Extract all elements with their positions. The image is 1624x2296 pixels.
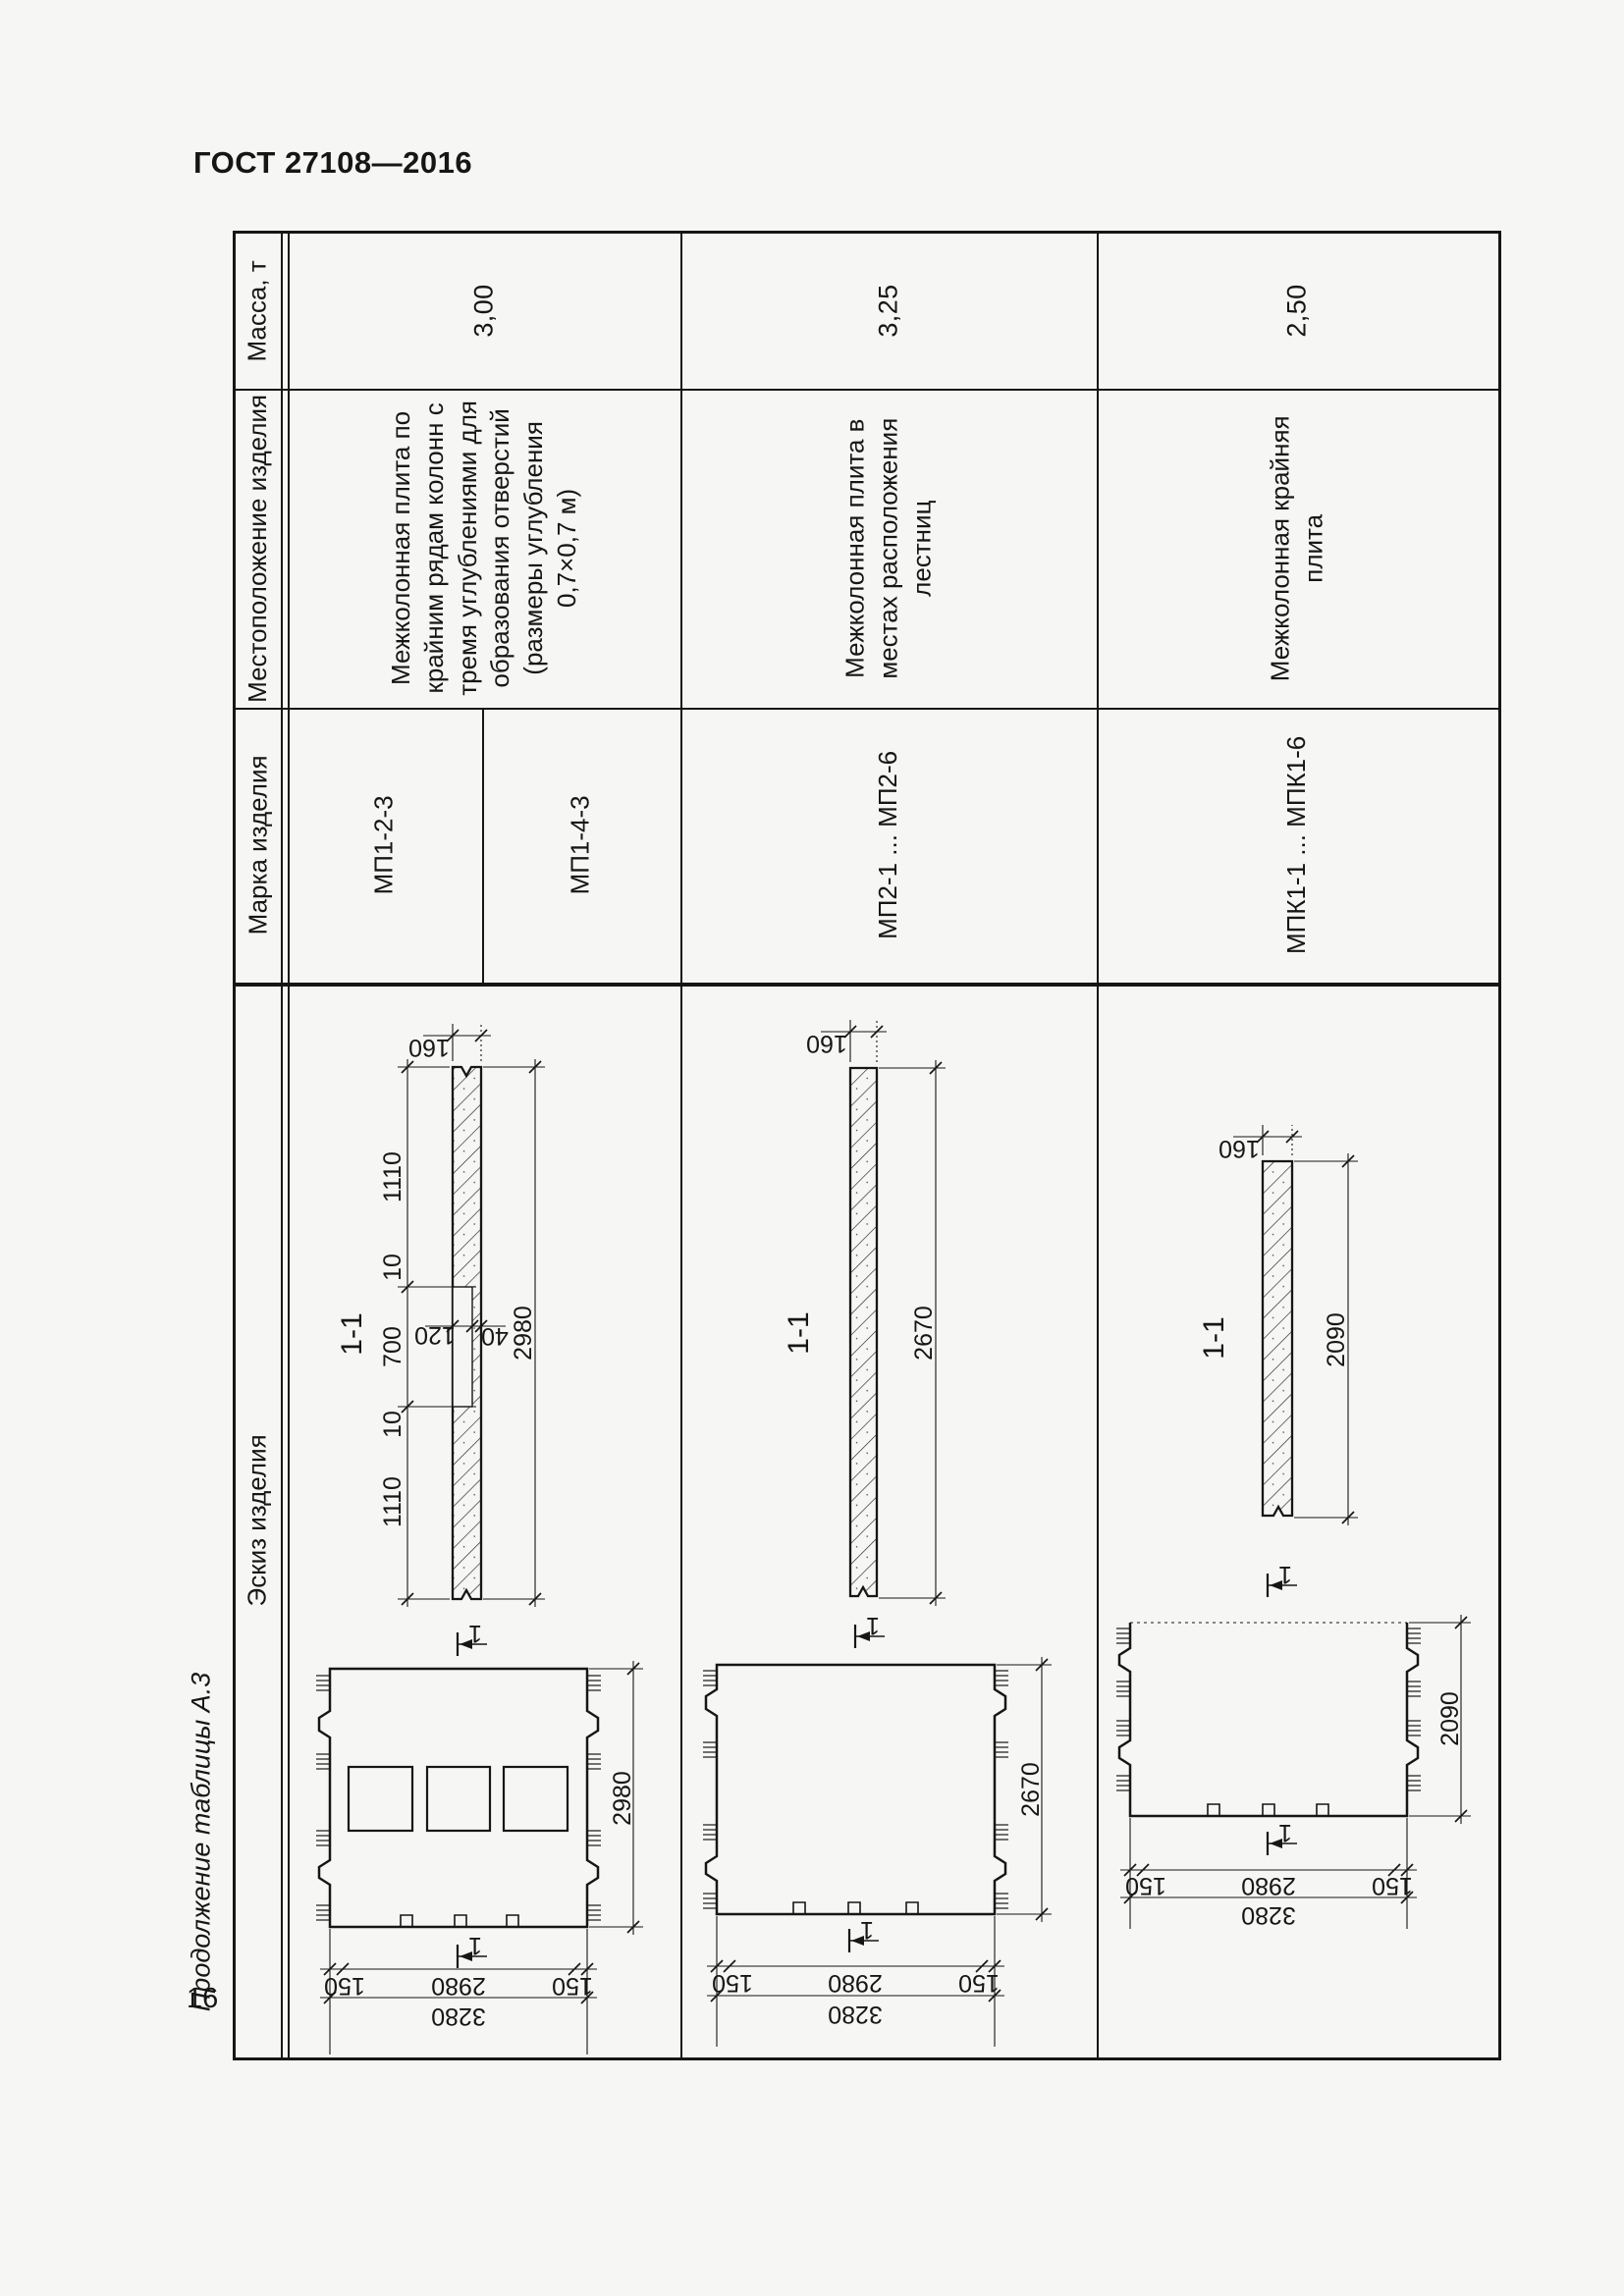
mark-product1-b: МП1-4-3 [482, 708, 680, 983]
plan-opening [504, 1767, 568, 1831]
plan-dim-mid: 2980 [431, 1972, 486, 2000]
grid-line-header-separator [281, 234, 283, 2057]
edge-key [793, 1902, 805, 1914]
table-continuation-caption: Продолжение таблицы А.3 [180, 1696, 223, 1987]
plan-dim-height: 2090 [1436, 1691, 1464, 1746]
mark-product3: МПК1-1 ... МПК1-6 [1097, 708, 1498, 983]
dim-thickness: 160 [408, 1034, 450, 1061]
dim-length: 2670 [910, 1306, 938, 1361]
dim-seg-d: 10 [379, 1411, 406, 1438]
section-label: 1-1 [1198, 1316, 1230, 1359]
edge-key [1263, 1804, 1274, 1816]
plan-dim-edge-r: 150 [552, 1972, 593, 2000]
plan-dim-edge-l: 150 [712, 1969, 753, 1997]
mark-product1-a: МП1-2-3 [288, 708, 482, 983]
location-product3: Межколонная крайняя плита [1097, 389, 1498, 708]
cut-mark: 1 [458, 1932, 487, 1968]
dim-thickness: 160 [1218, 1135, 1260, 1162]
plan-dim-height: 2980 [609, 1771, 636, 1826]
svg-text:1: 1 [866, 1612, 880, 1639]
cut-mark: 1 [458, 1620, 487, 1656]
section-view-product1: 1110 10 700 10 1110 120 40 [336, 1024, 545, 1607]
edge-key [455, 1915, 466, 1927]
dim-seg-e: 1110 [379, 1476, 406, 1527]
plan-opening [349, 1767, 412, 1831]
sketch-product3: 160 2090 1-1 1 [1097, 985, 1498, 2056]
plan-dim-total: 3280 [1241, 1901, 1296, 1929]
row-header-sketch: Эскиз изделия [236, 983, 281, 2057]
document-code: ГОСТ 27108—2016 [193, 145, 472, 181]
row-header-mark: Марка изделия [236, 708, 281, 983]
dim-recess-rest: 40 [481, 1322, 509, 1350]
edge-key [906, 1902, 918, 1914]
dim-length: 2980 [510, 1306, 537, 1361]
page-number: 16 [187, 1983, 218, 2015]
dim-length: 2090 [1323, 1312, 1350, 1367]
plan-dim-height: 2670 [1017, 1762, 1045, 1817]
plan-dim-mid: 2980 [1241, 1872, 1296, 1899]
edge-key [1208, 1804, 1219, 1816]
svg-text:1: 1 [1278, 1819, 1292, 1846]
section-label: 1-1 [336, 1312, 368, 1355]
row-header-location: Местоположение изделия [236, 389, 281, 708]
location-product2: Межколонная плита в местах расположения … [680, 389, 1097, 708]
mass-value-product3: 2,50 [1097, 234, 1498, 389]
cut-mark: 1 [849, 1916, 879, 1952]
svg-text:1: 1 [1278, 1561, 1292, 1588]
sketch-product2: 160 2670 1-1 1 [680, 985, 1097, 2056]
plan-dim-edge-r: 150 [1372, 1872, 1413, 1899]
plan-view-product2: 2670 150 2980 150 3280 [703, 1657, 1052, 2047]
dim-recess-depth: 120 [414, 1321, 456, 1349]
plan-opening [427, 1767, 490, 1831]
dim-seg-b: 10 [379, 1254, 406, 1281]
table-continuation-caption-text: Продолжение таблицы А.3 [187, 1672, 217, 2011]
plan-dim-mid: 2980 [828, 1969, 883, 1997]
plan-dim-edge-r: 150 [958, 1969, 1000, 1997]
plan-dim-edge-l: 150 [1125, 1872, 1166, 1899]
location-product1: Межколонная плита по крайним рядам колон… [288, 389, 680, 708]
section-view-product3: 160 2090 1-1 [1198, 1125, 1358, 1525]
cut-mark: 1 [1268, 1561, 1297, 1597]
section-view-product2: 160 2670 1-1 [783, 1020, 946, 1606]
plan-view-product1: 2980 150 2980 150 3280 [316, 1661, 643, 2055]
svg-text:1: 1 [468, 1620, 482, 1647]
cut-mark: 1 [1268, 1819, 1297, 1855]
mass-value-product2: 3,25 [680, 234, 1097, 389]
edge-key [848, 1902, 860, 1914]
document-page: ГОСТ 27108—2016 Продолжение таблицы А.3 … [0, 0, 1624, 2296]
svg-text:1: 1 [860, 1916, 874, 1944]
plan-dim-total: 3280 [431, 2002, 486, 2030]
dim-thickness: 160 [806, 1030, 847, 1057]
mark-product2: МП2-1 ... МП2-6 [680, 708, 1097, 983]
row-header-mass: Масса, т [236, 234, 281, 389]
edge-key [507, 1915, 518, 1927]
plan-view-product3: 2090 150 2980 150 3280 [1116, 1615, 1471, 1929]
plan-dim-total: 3280 [828, 2001, 883, 2028]
section-label: 1-1 [783, 1311, 815, 1354]
sketch-product1: 1110 10 700 10 1110 120 40 [288, 985, 680, 2056]
cut-mark: 1 [855, 1612, 885, 1648]
svg-text:1: 1 [468, 1932, 482, 1959]
edge-key [401, 1915, 412, 1927]
products-table: Масса, т Местоположение изделия Марка из… [233, 231, 1501, 2060]
edge-key [1317, 1804, 1328, 1816]
plan-dim-edge-l: 150 [324, 1972, 365, 2000]
dim-seg-a: 1110 [379, 1151, 406, 1202]
dim-seg-c: 700 [379, 1326, 406, 1367]
mass-value-product1: 3,00 [288, 234, 680, 389]
